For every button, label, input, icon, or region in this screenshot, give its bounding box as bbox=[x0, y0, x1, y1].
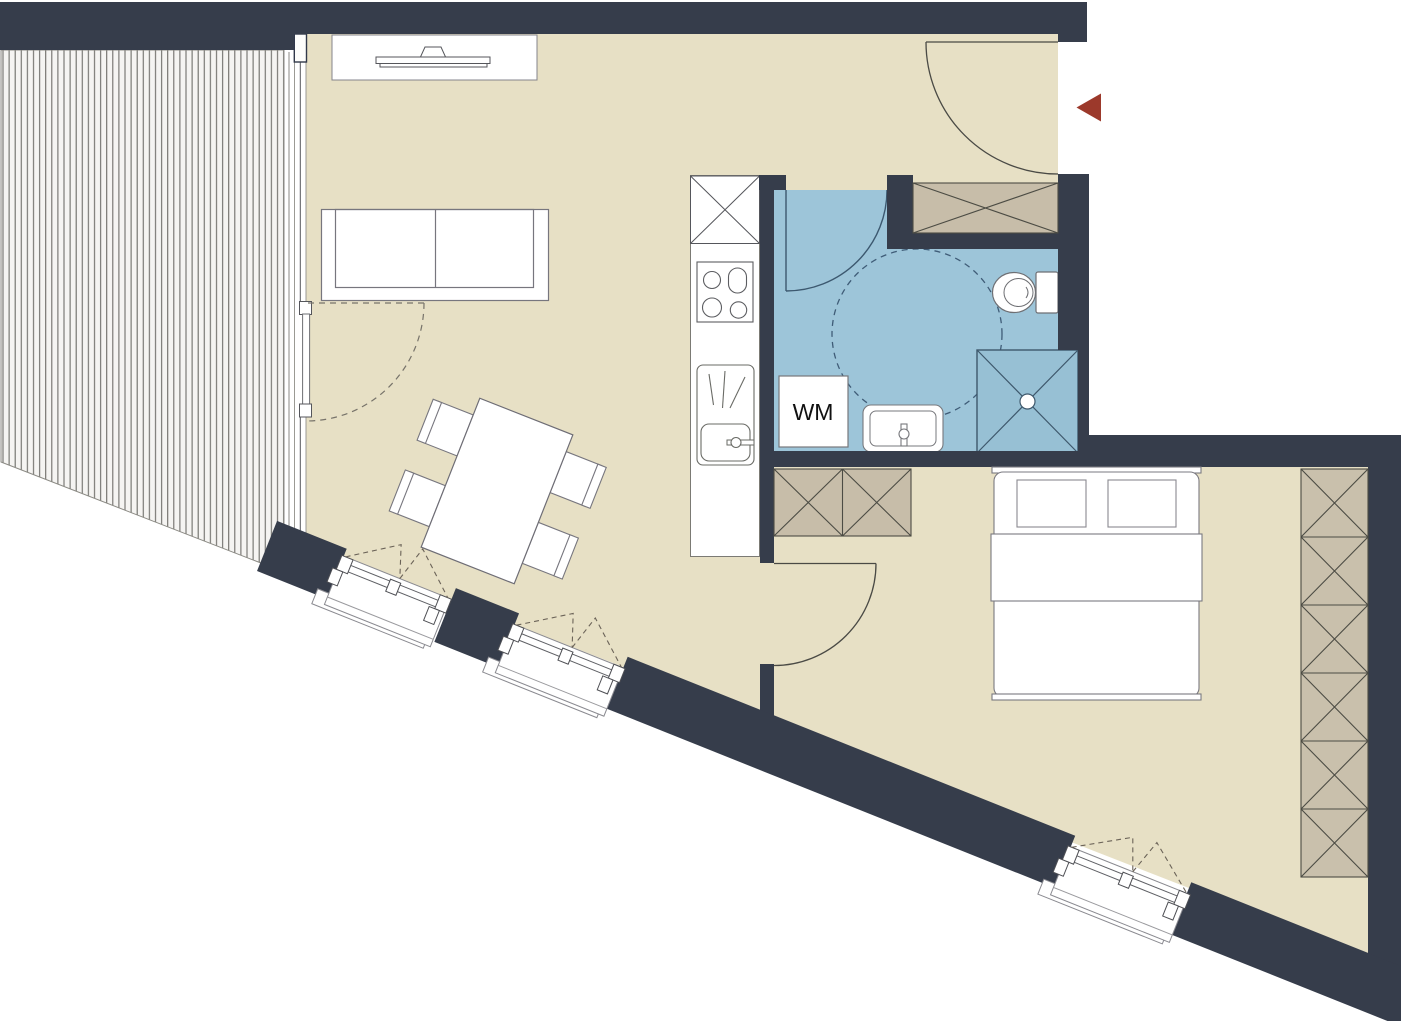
svg-text:WM: WM bbox=[793, 399, 834, 425]
